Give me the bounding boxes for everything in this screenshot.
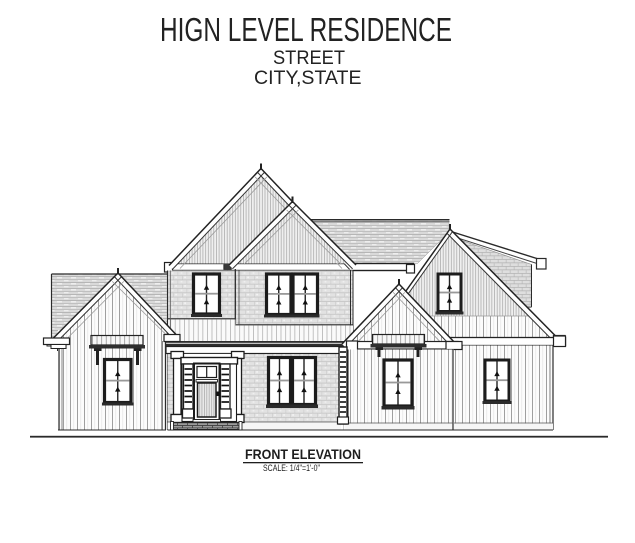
- svg-text:FRONT ELEVATION: FRONT ELEVATION: [245, 446, 361, 462]
- svg-text:STREET: STREET: [273, 48, 345, 69]
- svg-text:CITY,STATE: CITY,STATE: [254, 68, 362, 89]
- svg-text:SCALE: 1/4"=1'-0": SCALE: 1/4"=1'-0": [263, 463, 320, 473]
- svg-text:HIGN LEVEL RESIDENCE: HIGN LEVEL RESIDENCE: [160, 11, 452, 48]
